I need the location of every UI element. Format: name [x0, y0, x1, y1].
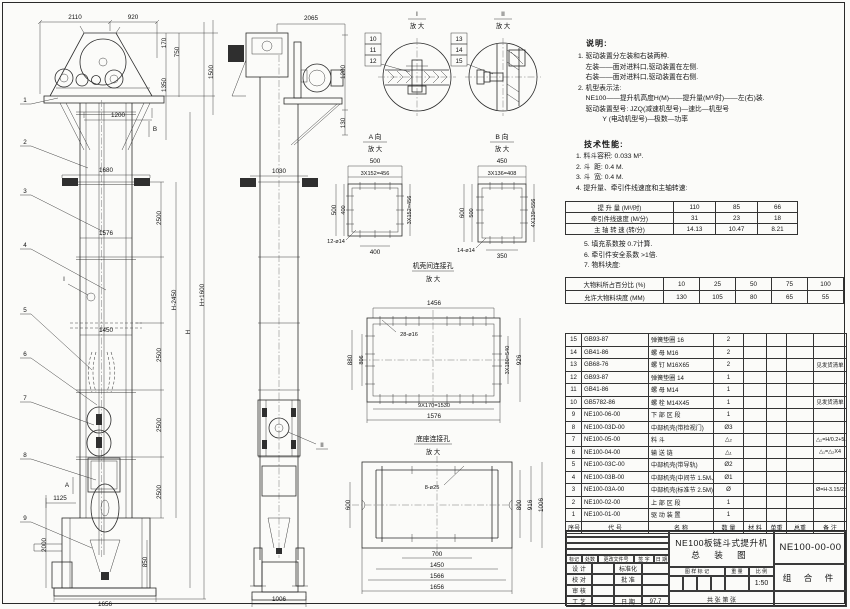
dim-bs-1656: 1656 [430, 584, 445, 591]
parts-row: 7NE100-05-00料 斗 △₂ △₂=H/0.2+5.75 [566, 434, 847, 447]
dim-H-2450: H-2450 [171, 289, 178, 310]
dim-1450: 1450 [99, 327, 114, 334]
parts-row: 9NE100-06-00下 部 区 段 1 [566, 409, 847, 422]
parts-row: 11GB41-86螺 母 M14 1 [566, 384, 847, 397]
dim-1030: 1030 [272, 168, 287, 175]
parts-row: 15GB93-87弹簧垫圈 16 2 [566, 334, 847, 347]
leader-14: 14 [455, 47, 463, 54]
leader-6: 6 [23, 351, 27, 358]
leader-8: 8 [23, 452, 27, 459]
sig-audit: 审 核 [566, 585, 592, 596]
parts-row: 6NE100-04-00输 送 链 △₁ △₁=△₂X4 [566, 446, 847, 459]
dim-b-3x136: 3X136=408 [488, 171, 517, 177]
parts-row: 4NE100-03B-00中部机壳(中间节 1.5M、1M) Ø1 [566, 471, 847, 484]
leader-3: 3 [23, 188, 27, 195]
dim-b-600: 600 [459, 207, 466, 218]
sheet-count: 共 张 第 张 [669, 591, 774, 607]
dim-s-9x170: 9X170=1530 [418, 403, 450, 409]
note-line: 驱动装置型号: JZQ(减速机型号)—速比—机型号 [578, 105, 843, 116]
dim-850: 850 [142, 556, 149, 567]
parts-row: 3NE100-03A-00中部机壳(标准节 2.5M) Ø Ø=H-3.15/2… [566, 484, 847, 497]
detail-ii: II 放 大 13 14 15 [451, 11, 541, 116]
lump-row: 大物料所占百分比 (%)10255075100 [566, 278, 844, 291]
dim-b-4x139: 4X139=556 [531, 199, 537, 228]
detail-a-subtitle: 放 大 [368, 144, 383, 153]
dim-a-400b: 400 [370, 249, 381, 256]
dim-1680: 1680 [99, 167, 114, 174]
dim-2110: 2110 [68, 14, 82, 21]
dim-1200: 1200 [111, 112, 126, 119]
detail-i-subtitle: 放 大 [410, 21, 425, 30]
dim-1656: 1656 [98, 601, 113, 608]
dim-920: 920 [128, 14, 139, 21]
dim-s-28d16: 28-ø16 [400, 332, 418, 338]
lump-table: 大物料所占百分比 (%)10255075100 允许大物料块度 (MM)1301… [565, 277, 844, 304]
dim-750: 750 [174, 46, 181, 57]
detail-b: B 向 放 大 450 3X136=408 600 500 4X139=556 … [457, 132, 537, 260]
leader-5: 5 [23, 307, 27, 314]
dim-b-500: 500 [469, 208, 475, 217]
parts-row: 1NE100-01-00驱 动 装 置 1 [566, 509, 847, 522]
tech-items: 1. 料斗容积: 0.033 M³.2. 斗 距: 0.4 M.3. 斗 宽: … [576, 152, 841, 194]
dim-170: 170 [161, 37, 168, 48]
marker-b: B [153, 126, 157, 133]
dim-a-12d14: 12-ø14 [327, 239, 345, 245]
dim-a-3x152r: 3X152=456 [407, 196, 413, 225]
dim-bs-1450: 1450 [430, 562, 445, 569]
dim-1576: 1576 [99, 230, 114, 237]
rev-col-date: 日 期 [654, 555, 669, 563]
dim-b-14d14: 14-ø14 [457, 248, 475, 254]
stamp-weight-label: 重 量 [725, 567, 749, 576]
side-view: II 2065 1200 130 1030 1006 [228, 15, 348, 607]
sig-standard: 标准化 [614, 563, 642, 574]
dim-s-806: 806 [359, 355, 365, 364]
note-line: 1. 驱动装置分左装和右装两种. [578, 52, 843, 63]
dim-bs-1006: 1006 [538, 498, 545, 513]
detail-b-subtitle: 放 大 [495, 144, 510, 153]
sig-check: 校 对 [566, 574, 592, 585]
dim-2000: 2000 [41, 538, 48, 553]
leader-1: 1 [23, 97, 27, 104]
detail-shell-holes: 机壳间连接孔 放 大 1456 28-ø16 880 806 3X180=540… [347, 261, 523, 423]
leader-10: 10 [369, 36, 377, 43]
detail-ii-subtitle: 放 大 [496, 21, 511, 30]
rev-col-count: 处数 [582, 555, 598, 563]
title-block: 标记 处数 更改文件号 签 字 日 期 设 计 标准化 校 对 批 准 审 核 … [565, 530, 846, 606]
dim-b-350: 350 [497, 253, 508, 260]
lump-row: 允许大物料块度 (MM)130105806555 [566, 291, 844, 304]
dim-2500: 2500 [156, 211, 163, 226]
detail-base-holes: 底座连接孔 放 大 8-ø25 600 800 916 1006 700 145… [345, 434, 545, 594]
drawing-sheet: 2110 920 1200 1680 1576 1450 1125 1656 2… [0, 0, 850, 609]
dim-2500: 2500 [156, 485, 163, 500]
dim-H: H [185, 329, 192, 334]
scale-value: 1:50 [749, 576, 774, 591]
dim-b-450: 450 [497, 158, 508, 165]
front-view [34, 26, 164, 596]
dim-a-3x152: 3X152=456 [361, 171, 390, 177]
dim-s-3x180: 3X180=540 [505, 346, 511, 375]
dim-2065: 2065 [304, 15, 319, 22]
detail-i-title: I [416, 11, 418, 18]
detail-shell-title: 机壳间连接孔 [413, 261, 454, 270]
leader-13: 13 [455, 36, 463, 43]
dim-bs-800: 800 [516, 499, 523, 510]
sig-date-value: 97.7 [642, 596, 669, 607]
parts-row: 10GB5782-86螺 栓 M14X45 1 见发货清单 [566, 396, 847, 409]
sig-design: 设 计 [566, 563, 592, 574]
parts-row: 8NE100-03D-00中部机壳(带检视门) Ø3 [566, 421, 847, 434]
tech-item: 7. 物料块度: [584, 261, 844, 272]
leader-numbers: 1 2 3 4 5 6 7 8 9 I B A [20, 97, 157, 548]
leader-12: 12 [369, 58, 377, 65]
parts-row: 5NE100-03C-00中部机壳(带导轨) Ø2 [566, 459, 847, 472]
dim-bs-8d25: 8-ø25 [425, 485, 440, 491]
dim-1350: 1350 [161, 78, 168, 93]
detail-a: A 向 放 大 500 3X152=456 500 400 3X152=456 … [327, 132, 413, 256]
leader-15: 15 [455, 58, 463, 65]
detail-base-subtitle: 放 大 [426, 447, 441, 456]
marker-ii: II [320, 442, 324, 449]
sig-process: 工 艺 [566, 596, 592, 607]
parts-row: 14GB41-86螺 母 M16 2 [566, 346, 847, 359]
product-name: NE100板链斗式提升机 [675, 537, 767, 549]
tech-item: 3. 斗 宽: 0.4 M. [576, 173, 841, 184]
dim-bs-700: 700 [432, 551, 443, 558]
detail-a-title: A 向 [369, 132, 382, 141]
tech-item: 4. 提升量、牵引件线速度和主轴转速: [576, 184, 841, 195]
note-line: NE100——提升机高度H(M)——提升量(M³/时)——左(右)装. [578, 94, 843, 105]
note-line: Y (电动机型号)—极数—功率 [578, 115, 843, 126]
speed-row: 主 轴 转 速 (转/分)14.1310.478.21 [566, 224, 798, 235]
dim-a-500l: 500 [331, 204, 338, 215]
notes-lines: 1. 驱动装置分左装和右装两种. 左装——面对进料口,驱动装置在左侧. 右装——… [578, 52, 843, 126]
leader-9: 9 [23, 515, 27, 522]
dim-a-400l: 400 [341, 205, 347, 214]
detail-base-title: 底座连接孔 [416, 434, 450, 443]
note-line: 左装——面对进料口,驱动装置在左侧. [578, 63, 843, 74]
sig-date-label: 日 期 [614, 596, 642, 607]
parts-row: 2NE100-02-00上 部 区 段 1 [566, 496, 847, 509]
dim-bs-916: 916 [527, 499, 534, 510]
rev-col-mark: 标记 [566, 555, 582, 563]
tech-item: 6. 牵引件安全系数 >1倍. [584, 251, 844, 262]
parts-row: 13GB68-76螺 钉 M16X65 2 见发货清单 [566, 359, 847, 372]
tech-title: 技术性能: [584, 139, 624, 150]
dim-sv-1200: 1200 [340, 65, 347, 80]
dim-bs-600: 600 [345, 499, 352, 510]
sig-approve: 批 准 [614, 574, 642, 585]
dim-2500: 2500 [156, 418, 163, 433]
dim-bs-1566: 1566 [430, 573, 445, 580]
dim-s-926: 926 [516, 354, 523, 365]
dim-s-1576: 1576 [427, 413, 442, 420]
dim-H+1600: H+1600 [199, 283, 206, 306]
leader-7: 7 [23, 395, 27, 402]
leader-11: 11 [370, 47, 377, 54]
dim-s-1456: 1456 [427, 300, 442, 307]
detail-i: I 放 大 10 11 12 [365, 11, 456, 116]
dim-2500: 2500 [156, 348, 163, 363]
detail-b-title: B 向 [495, 132, 508, 141]
rev-col-docno: 更改文件号 [598, 555, 634, 563]
speed-row: 提 升 量 (M³/时)1108566 [566, 202, 798, 213]
leader-4: 4 [23, 242, 27, 249]
rev-col-sign: 签 字 [634, 555, 654, 563]
dim-a-500: 500 [370, 158, 381, 165]
notes-title: 说明: [586, 38, 608, 49]
tech-items-2: 5. 填充系数按 0.7计算.6. 牵引件安全系数 >1倍.7. 物料块度: [584, 240, 844, 272]
dim-1006: 1006 [272, 596, 287, 603]
tech-item: 2. 斗 距: 0.4 M. [576, 163, 841, 174]
leader-2: 2 [23, 139, 27, 146]
dim-s-880: 880 [347, 354, 354, 365]
parts-row: 12GB93-87弹簧垫圈 14 1 [566, 371, 847, 384]
dim-sv-130: 130 [340, 117, 347, 128]
stamp-mark-label: 图 样 标 记 [669, 567, 725, 576]
marker-i: I [63, 276, 65, 283]
detail-shell-subtitle: 放 大 [426, 274, 441, 283]
tech-item: 5. 填充系数按 0.7计算. [584, 240, 844, 251]
speed-row: 牵引件线速度 (M/分)312318 [566, 213, 798, 224]
assembly-type: 组 合 件 [774, 564, 847, 591]
tech-item: 1. 料斗容积: 0.033 M³. [576, 152, 841, 163]
parts-list: 15GB93-87弹簧垫圈 16 2 14GB41-86螺 母 M16 2 13… [565, 333, 847, 534]
marker-a: A [65, 482, 70, 489]
sheet-name: 总 装 图 [691, 549, 752, 561]
drawing-number: NE100-00-00 [774, 531, 847, 564]
note-line: 右装——面对进料口,驱动装置在右侧. [578, 73, 843, 84]
speed-table: 提 升 量 (M³/时)1108566 牵引件线速度 (M/分)312318 主… [565, 201, 798, 235]
dim-1500: 1500 [208, 65, 215, 80]
drawing-title-cell: NE100板链斗式提升机 总 装 图 [669, 531, 774, 567]
detail-ii-title: II [501, 11, 505, 18]
stamp-scale-label: 比 例 [749, 567, 774, 576]
dim-1125: 1125 [53, 495, 67, 502]
note-line: 2. 机型表示法: [578, 84, 843, 95]
